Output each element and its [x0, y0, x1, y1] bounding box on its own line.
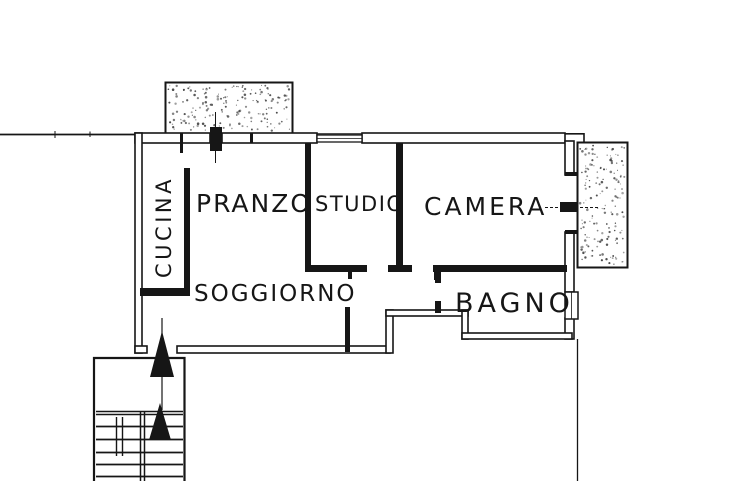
- room-label-pranzo: PRANZO: [196, 189, 312, 218]
- wall-bottom-bagno: [462, 333, 572, 339]
- door-camera-balcony-marker: [560, 202, 578, 212]
- direction-arrows: [149, 318, 174, 440]
- wall-camera-bagno: [433, 265, 567, 272]
- wall-bottom-soggiorno: [177, 346, 390, 353]
- wall-cucina-vertical: [184, 168, 190, 294]
- wall-studio-camera-foot: [388, 265, 412, 272]
- door-pranzo-balcony-marker: [210, 127, 222, 151]
- interior-walls: [140, 133, 577, 352]
- wall-cucina-horizontal: [140, 288, 190, 296]
- room-label-camera: CAMERA: [424, 192, 547, 221]
- stair-handrail: [117, 417, 123, 456]
- wall-soggiorno-stub: [345, 307, 350, 352]
- entrance-up-arrow-icon: [150, 331, 174, 377]
- floorplan-page: CUCINA PRANZO STUDIO CAMERA SOGGIORNO BA…: [0, 0, 745, 481]
- room-label-studio: STUDIO: [315, 192, 404, 216]
- exterior-walls: [135, 133, 584, 353]
- wall-bagno-left-lower: [435, 301, 441, 313]
- wall-right-upper: [565, 141, 574, 175]
- wall-tick-right-of-door: [250, 133, 253, 143]
- room-label-bagno: BAGNO: [455, 288, 574, 319]
- room-label-soggiorno: SOGGIORNO: [194, 281, 357, 307]
- room-label-cucina: CUCINA: [152, 176, 176, 278]
- wall-studio-bottom-stub: [305, 265, 367, 272]
- floorplan-canvas: CUCINA PRANZO STUDIO CAMERA SOGGIORNO BA…: [0, 0, 745, 481]
- stair-center-divider: [141, 411, 145, 481]
- wall-top-c: [362, 133, 565, 143]
- wall-tick-left-of-door: [180, 133, 183, 153]
- stair-steps: [96, 427, 183, 477]
- room-labels: CUCINA PRANZO STUDIO CAMERA SOGGIORNO BA…: [152, 176, 574, 319]
- wall-top-b: [222, 133, 317, 143]
- wall-bagno-left-upper: [435, 272, 441, 283]
- wall-bottom-left: [135, 346, 147, 353]
- door-jamb-studio: [348, 272, 352, 279]
- wall-right-mid: [565, 232, 574, 292]
- wall-top-a: [135, 133, 210, 143]
- balcony-top: [166, 83, 293, 134]
- wall-left: [135, 133, 142, 353]
- door-jamb-balcony-bottom: [565, 230, 577, 234]
- balcony-right-outline: [578, 143, 628, 268]
- door-jamb-balcony-top: [565, 172, 577, 176]
- stairs-up-arrow-icon: [149, 403, 171, 440]
- balcony-right: [578, 143, 628, 268]
